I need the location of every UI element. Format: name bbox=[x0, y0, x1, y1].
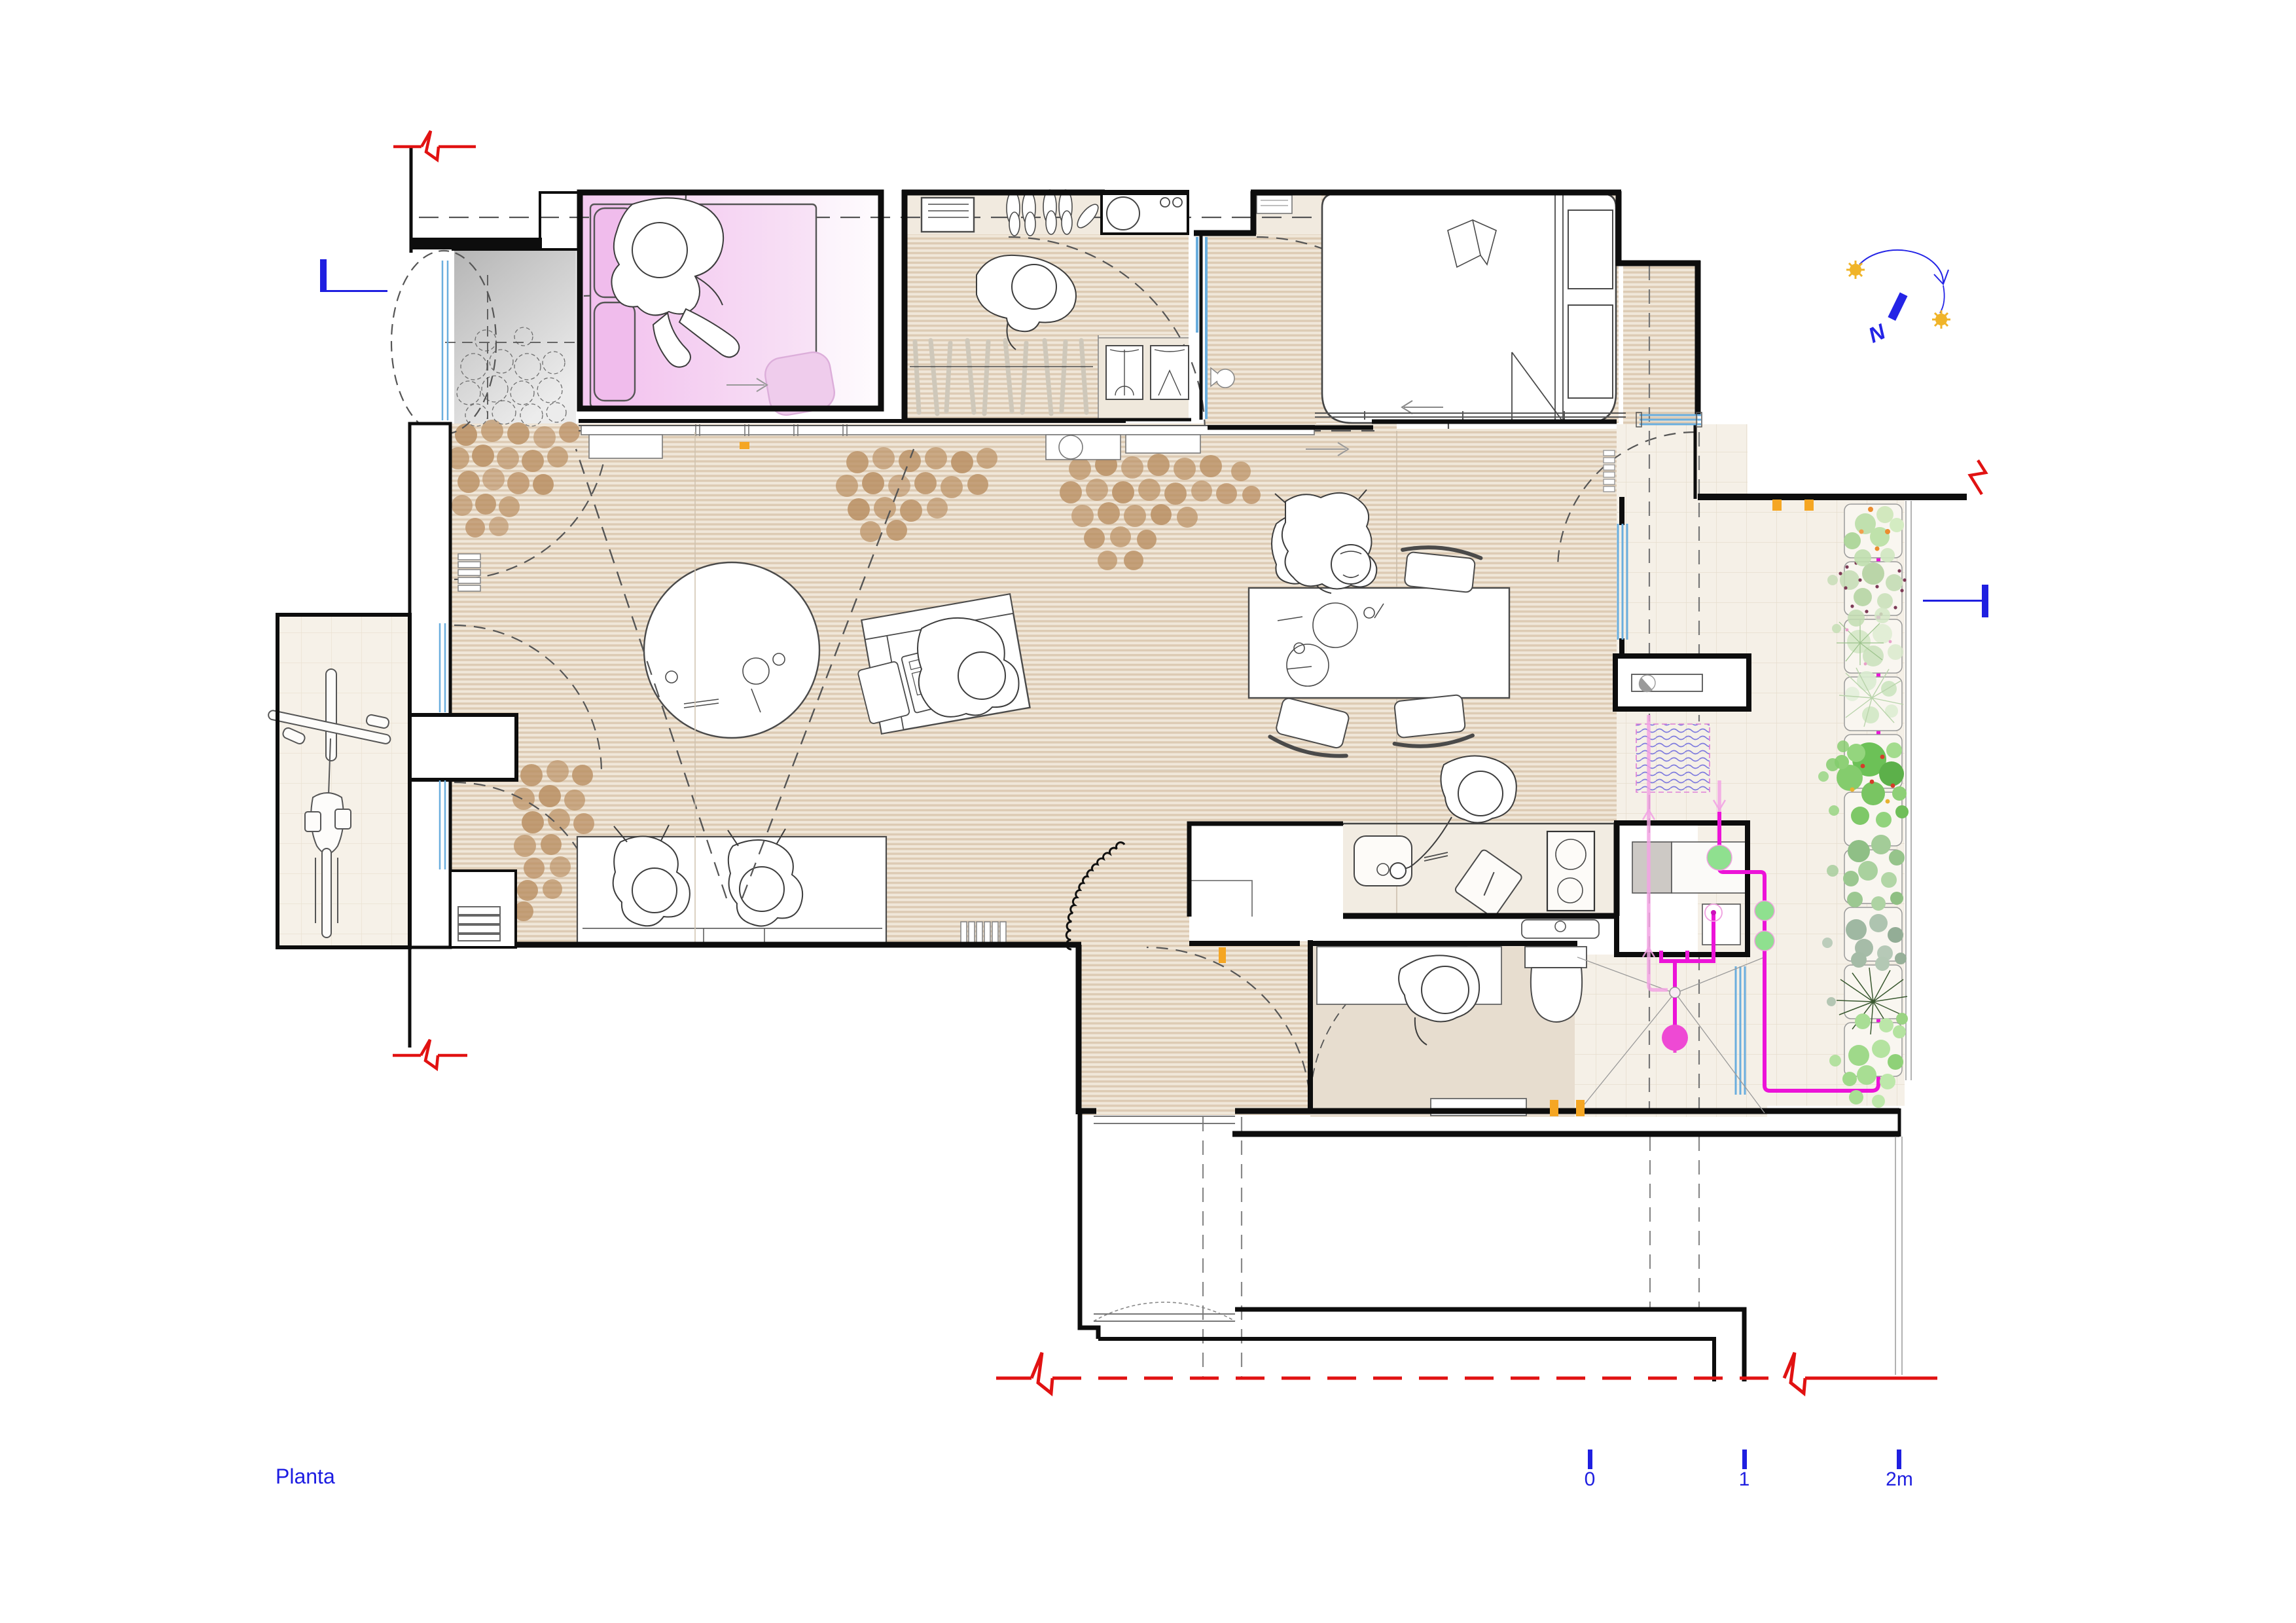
svg-text:2m: 2m bbox=[1886, 1468, 1913, 1490]
svg-text:Planta: Planta bbox=[276, 1465, 335, 1488]
svg-text:0: 0 bbox=[1585, 1468, 1596, 1490]
svg-text:1: 1 bbox=[1739, 1468, 1750, 1490]
